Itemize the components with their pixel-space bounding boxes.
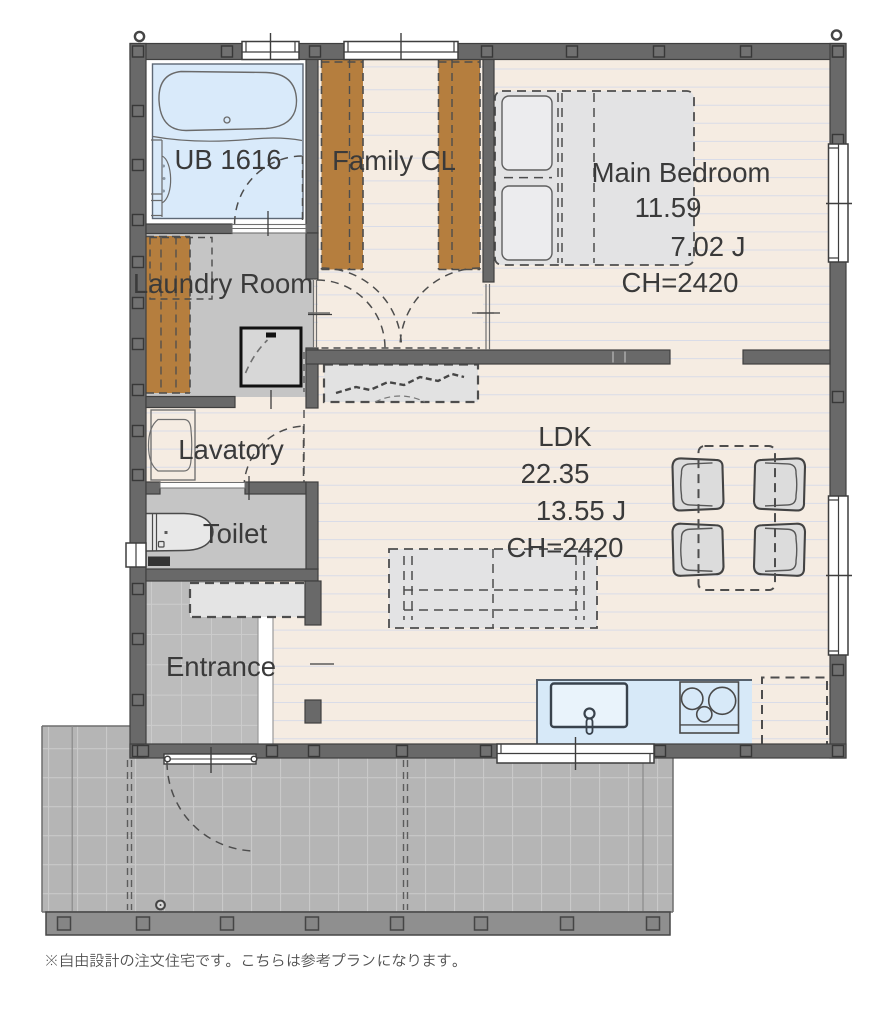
svg-text:22.35: 22.35: [521, 458, 590, 489]
svg-text:Laundry Room: Laundry Room: [133, 268, 313, 299]
svg-text:CH=2420: CH=2420: [507, 532, 624, 563]
svg-text:Main Bedroom: Main Bedroom: [592, 157, 771, 188]
svg-text:Toilet: Toilet: [203, 518, 268, 549]
svg-text:Entrance: Entrance: [166, 651, 276, 682]
svg-text:11.59: 11.59: [635, 192, 702, 223]
svg-text:Lavatory: Lavatory: [178, 434, 284, 465]
svg-text:13.55 J: 13.55 J: [536, 495, 626, 526]
svg-text:Family CL: Family CL: [332, 145, 456, 176]
svg-text:CH=2420: CH=2420: [622, 267, 739, 298]
svg-text:7.02 J: 7.02 J: [671, 231, 746, 262]
svg-text:LDK: LDK: [538, 421, 592, 452]
svg-text:UB 1616: UB 1616: [174, 144, 281, 175]
